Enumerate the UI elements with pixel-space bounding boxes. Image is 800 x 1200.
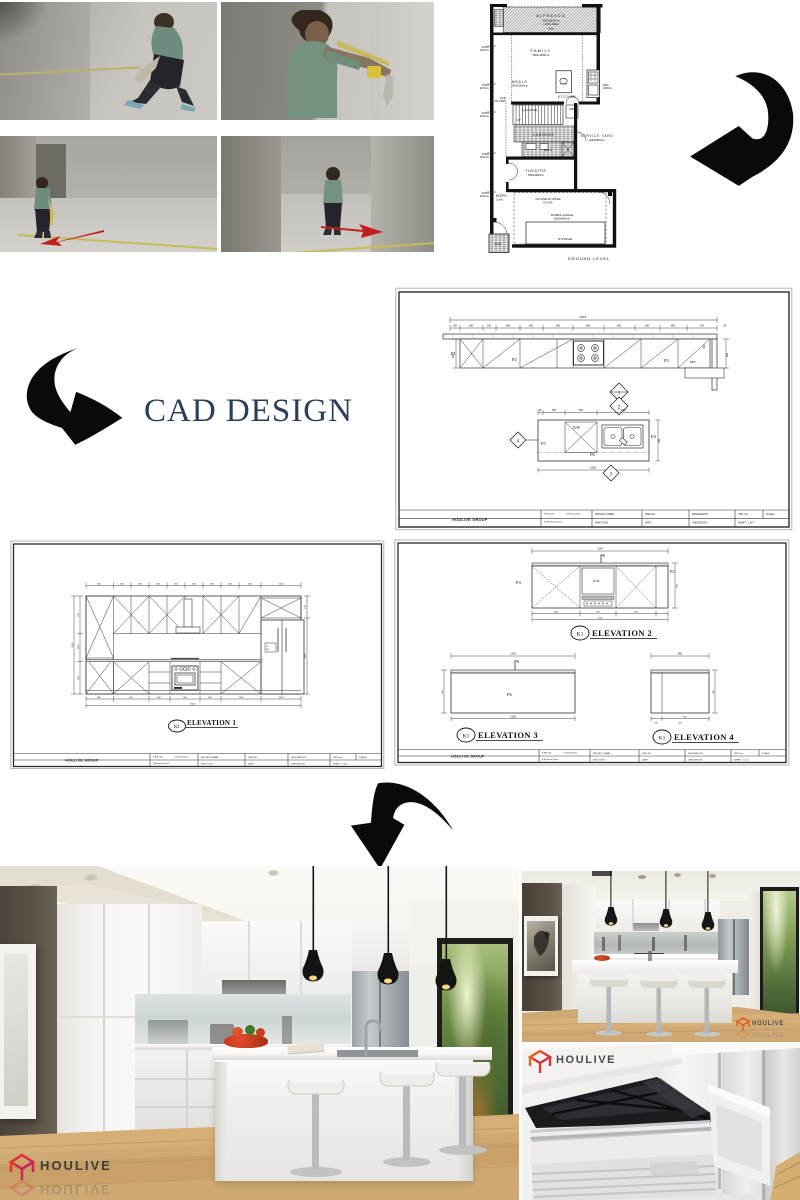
svg-text:P5: P5 [670,569,674,574]
svg-text:P3: P3 [664,358,670,363]
svg-text:2140: 2140 [598,618,604,620]
svg-text:HOULIVE: HOULIVE [40,1158,112,1173]
svg-text:600: 600 [726,352,729,357]
svg-text:GARAGE: GARAGE [522,108,538,112]
svg-text:1100: 1100 [239,697,244,699]
svg-text:CHECKED BY :: CHECKED BY : [692,522,709,525]
svg-text:240m: 240m [548,28,554,31]
svg-text:F-HXL228: F-HXL228 [153,757,163,759]
svg-text:HOΠΓIΛE: HOΠΓIΛE [40,1182,112,1197]
svg-text:2200x8900mm: 2200x8900mm [589,139,605,142]
svg-text:DWG NO :: DWG NO : [248,757,259,759]
svg-text:OUTLINE OF UPPER: OUTLINE OF UPPER [535,197,560,201]
svg-text:P6: P6 [507,692,513,697]
svg-text:P6: P6 [590,452,596,457]
svg-text:600: 600 [586,325,591,328]
svg-text:UNIT mm: UNIT mm [333,757,342,759]
svg-text:SCALE :: SCALE : [766,513,776,516]
svg-text:P2: P2 [512,357,518,362]
svg-text:ELEVATION 3: ELEVATION 3 [478,730,538,740]
svg-text:HOULIVE: HOULIVE [556,1054,616,1066]
svg-text:SCALE :: SCALE : [359,756,368,759]
svg-text:600: 600 [529,325,534,328]
svg-text:2140: 2140 [510,653,516,656]
svg-text:MEALS: MEALS [512,80,528,84]
svg-text:2130: 2130 [305,653,307,659]
svg-text:6000x6000mm: 6000x6000mm [554,218,570,221]
svg-text:P5: P5 [541,441,547,446]
svg-text:DWG NO :: DWG NO : [645,513,657,516]
svg-text:K1: K1 [463,734,470,740]
svg-text:DOUBLE GARAGE: DOUBLE GARAGE [551,213,574,217]
svg-text:ELEVATION 2: ELEVATION 2 [592,628,652,638]
svg-text:REF: REF [690,360,696,364]
svg-text:970: 970 [700,325,705,328]
svg-text:8 8: 8 8 [266,646,269,648]
svg-text:PROJECT NAME :: PROJECT NAME : [595,513,615,516]
svg-text:F-(Finishes) Panel: F-(Finishes) Panel [153,763,170,765]
svg-text:LAUNDRY: LAUNDRY [533,133,555,137]
svg-text:1500: 1500 [78,644,80,650]
svg-text:P4: P4 [651,434,657,439]
svg-text:1064: 1064 [554,612,560,614]
svg-text:F-HXL228: F-HXL228 [542,753,552,755]
svg-text:UNIT mm: UNIT mm [738,513,748,516]
svg-text:UNIT mm: UNIT mm [734,753,743,755]
svg-text:5900x3280mm: 5900x3280mm [528,174,544,177]
svg-text:16' B RANGE: 16' B RANGE [558,238,573,241]
svg-text:CHECKED BY :: CHECKED BY : [688,760,704,762]
svg-text:UP: UP [517,118,521,122]
svg-text:3000x3600mm: 3000x3600mm [512,85,528,88]
svg-text:DWG TITLE :: DWG TITLE : [595,522,610,525]
svg-text:DWG NO :: DWG NO : [642,753,653,755]
svg-text:DATE :: DATE : [645,522,653,525]
svg-text:888: 888 [266,649,269,651]
svg-text:1600: 1600 [620,409,626,412]
svg-text:600: 600 [645,325,650,328]
svg-text:FAMILY: FAMILY [530,48,551,53]
svg-text:620: 620 [579,409,584,412]
svg-text:SCALE :: SCALE : [762,752,771,755]
svg-text:960: 960 [678,653,683,656]
svg-text:2140: 2140 [597,548,603,551]
svg-text:HOULIVE: HOULIVE [752,1021,784,1027]
svg-text:ENTRY: ENTRY [496,194,508,198]
svg-text:2470mm: 2470mm [480,195,489,198]
svg-text:730: 730 [703,344,706,349]
svg-text:600: 600 [671,325,676,328]
svg-text:2180: 2180 [590,466,596,470]
svg-text:HOULIVE: HOULIVE [752,1033,784,1039]
svg-text:BATH: BATH [544,148,552,152]
svg-text:K1: K1 [577,632,584,638]
svg-text:THEATRE: THEATRE [525,169,546,173]
svg-text:KITCHEN: KITCHEN [558,95,576,99]
svg-text:F-(Finishes) Panel: F-(Finishes) Panel [544,522,562,524]
svg-text:2400: 2400 [72,642,74,648]
svg-text:HOULIVE GROUP: HOULIVE GROUP [65,759,99,763]
svg-text:100: 100 [453,325,458,328]
svg-text:SHEET : 2 of 4: SHEET : 2 of 4 [738,522,755,525]
svg-text:5900x4280mm: 5900x4280mm [532,53,549,57]
svg-text:4615: 4615 [580,315,587,319]
svg-text:K1: K1 [659,736,666,742]
svg-text:HOULIVE GROUP: HOULIVE GROUP [451,755,485,759]
svg-text:600: 600 [556,325,561,328]
svg-text:DESIGNED BY :: DESIGNED BY : [692,513,710,516]
svg-text:DATE :: DATE : [248,763,255,766]
svg-text:F-(Finishes) Panel: F-(Finishes) Panel [542,759,559,761]
svg-text:PROJECT NAME :: PROJECT NAME : [201,756,220,759]
svg-text:2470mm: 2470mm [480,87,489,90]
svg-text:P4: P4 [516,580,522,585]
svg-text:DESIGNED BY :: DESIGNED BY : [688,753,705,755]
svg-text:600: 600 [469,325,474,328]
svg-text:600: 600 [452,353,455,358]
svg-text:8610: 8610 [191,704,197,706]
svg-text:+39SQ AREA: +39SQ AREA [543,22,559,26]
svg-text:1030: 1030 [279,584,285,586]
svg-text:DATE :: DATE : [642,759,649,762]
svg-text:D-Finished flat: D-Finished flat [566,513,580,516]
svg-text:WIP: WIP [569,107,574,111]
svg-text:D/W: D/W [593,579,600,583]
svg-text:2190: 2190 [510,716,516,719]
svg-text:F-HXL228: F-HXL228 [544,514,555,516]
svg-text:WC OPEN: WC OPEN [495,100,507,103]
svg-text:K1: K1 [174,725,181,730]
svg-text:2470mm: 2470mm [480,156,489,159]
svg-text:PROJECT NAME :: PROJECT NAME : [593,752,612,755]
svg-text:ELEVATION 4: ELEVATION 4 [674,732,734,742]
svg-text:GROUND LEVEL: GROUND LEVEL [568,256,610,261]
svg-text:1030: 1030 [279,697,285,699]
svg-text:(1.8m): (1.8m) [496,199,503,202]
svg-text:D-Finished flat: D-Finished flat [564,752,577,755]
svg-text:POR: POR [495,242,502,246]
svg-text:HOULIVE GROUP: HOULIVE GROUP [452,518,488,522]
svg-text:460: 460 [658,438,661,443]
svg-text:450: 450 [552,409,557,412]
svg-text:2470mm: 2470mm [480,49,489,52]
svg-text:DWG TITLE :: DWG TITLE : [201,764,214,766]
svg-text:FLOOR: FLOOR [544,201,553,205]
svg-text:600: 600 [506,325,511,328]
svg-text:4100x2600mm: 4100x2600mm [542,19,559,23]
svg-text:2470mm: 2470mm [480,115,489,118]
svg-text:ALFRESCO: ALFRESCO [536,13,566,18]
svg-text:D/W: D/W [573,426,581,430]
svg-text:DWG TITLE :: DWG TITLE : [593,760,606,762]
svg-text:600: 600 [617,325,622,328]
svg-text:ELEVATION 1: ELEVATION 1 [187,719,236,727]
svg-text:230: 230 [487,325,492,328]
svg-text:SHEET : 3 of 4: SHEET : 3 of 4 [333,764,348,766]
svg-text:SHEET : 4 of 4: SHEET : 4 of 4 [734,760,749,762]
svg-text:DESIGNED BY :: DESIGNED BY : [291,757,308,759]
svg-text:1980mm: 1980mm [603,87,612,90]
svg-text:CHECKED BY :: CHECKED BY : [291,764,307,766]
svg-text:D-Finished flat: D-Finished flat [175,756,188,759]
